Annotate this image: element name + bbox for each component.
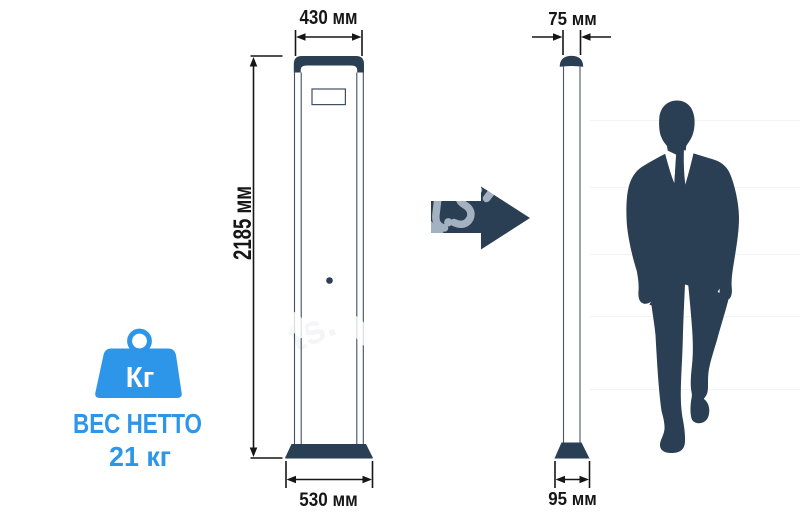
- svg-text:530 мм: 530 мм: [299, 489, 358, 511]
- svg-text:430 мм: 430 мм: [300, 6, 358, 29]
- svg-text:21 кг: 21 кг: [109, 441, 171, 472]
- svg-text:ВЕС НЕТТО: ВЕС НЕТТО: [73, 408, 202, 439]
- svg-text:75 мм: 75 мм: [548, 8, 597, 29]
- svg-text:Кг: Кг: [126, 362, 155, 394]
- svg-text:95 мм: 95 мм: [548, 488, 597, 509]
